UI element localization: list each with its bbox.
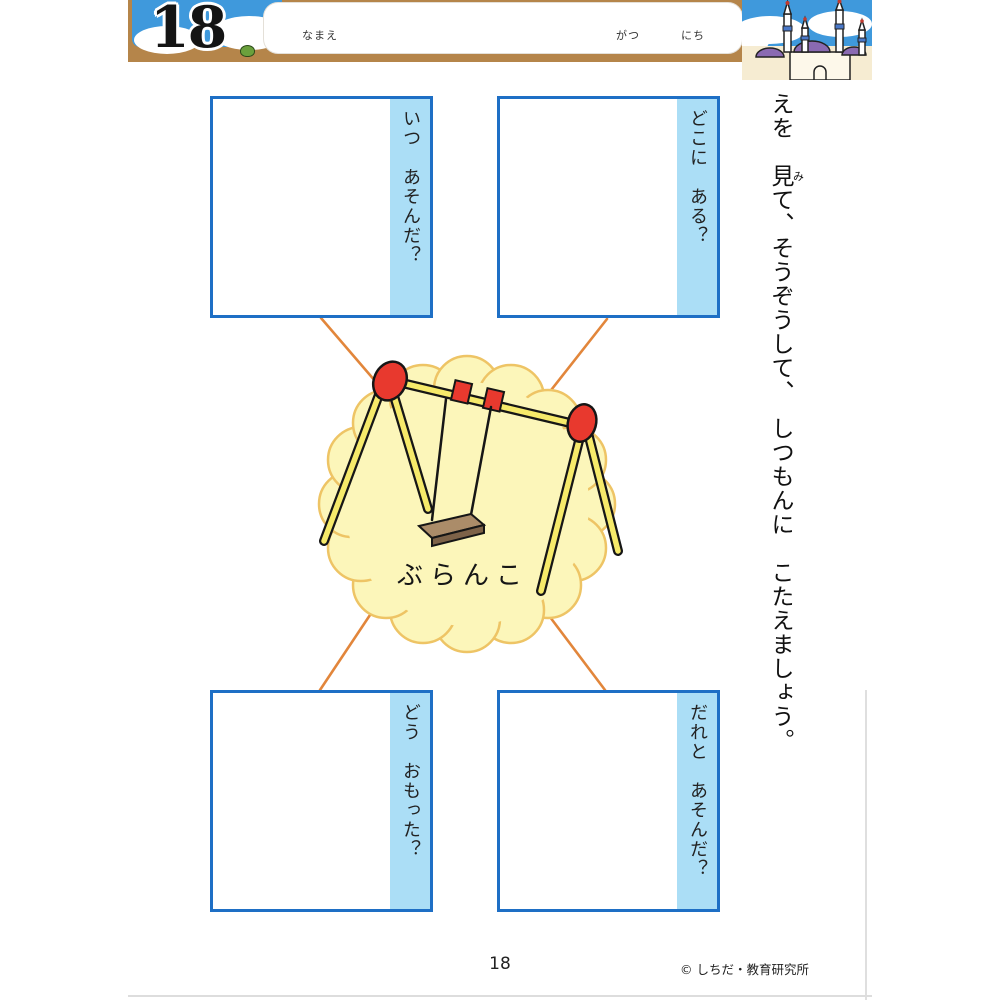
name-label: なまえ (302, 27, 338, 43)
answer-area-how[interactable] (213, 693, 390, 909)
instruction-kanji: 見み (767, 164, 793, 188)
question-box-who: だれと あそんだ？ (497, 690, 720, 912)
question-label-who: だれと あそんだ？ (688, 693, 706, 909)
mosque-illustration (742, 0, 872, 80)
question-label-where: どこに ある？ (688, 99, 706, 315)
copyright: © しちだ・教育研究所 (680, 959, 809, 978)
question-label-strip: どう おもった？ (390, 693, 430, 909)
question-box-how: どう おもった？ (210, 690, 433, 912)
question-label-strip: いつ あそんだ？ (390, 99, 430, 315)
answer-area-when[interactable] (213, 99, 390, 315)
worksheet-page: 18 なまえ がつ にち (128, 0, 872, 1000)
question-label-when: いつ あそんだ？ (401, 99, 419, 315)
name-box[interactable]: なまえ がつ にち (264, 3, 742, 53)
turtle-mascot-icon (240, 45, 255, 57)
page-edge-line (128, 995, 872, 997)
question-box-when: いつ あそんだ？ (210, 96, 433, 318)
lesson-number-badge: 18 (150, 0, 225, 61)
question-box-where: どこに ある？ (497, 96, 720, 318)
question-label-strip: どこに ある？ (677, 99, 717, 315)
day-label: にち (681, 27, 705, 43)
answer-area-who[interactable] (500, 693, 677, 909)
instruction-segment: て、そうぞうして、 しつもんに こたえましょう。 (767, 188, 793, 753)
furigana: み (792, 164, 805, 188)
question-label-strip: だれと あそんだ？ (677, 693, 717, 909)
question-label-how: どう おもった？ (401, 693, 419, 909)
instruction-segment: えを (767, 92, 793, 164)
month-label: がつ (616, 27, 640, 43)
topic-label: ぶらんこ (368, 555, 558, 592)
instruction-text: えを 見みて、そうぞうして、 しつもんに こたえましょう。 (763, 92, 805, 762)
answer-area-where[interactable] (500, 99, 677, 315)
header: 18 なまえ がつ にち (128, 0, 872, 62)
